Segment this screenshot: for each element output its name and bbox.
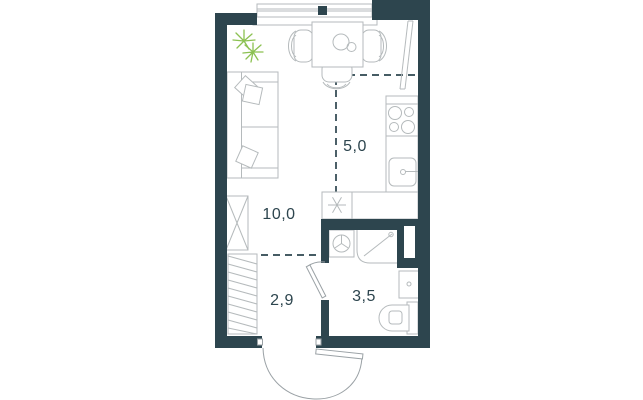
wall-bathroom-left-lower: [321, 300, 329, 336]
entrance-frame-mark: [258, 339, 263, 345]
entrance-door: [263, 348, 363, 399]
wall-left: [215, 13, 227, 348]
toilet: [379, 302, 418, 334]
dining-table: [312, 22, 363, 67]
washing-machine: [329, 230, 354, 257]
window-handle: [318, 6, 327, 15]
wall-top-left: [215, 13, 257, 25]
bathroom-area-label: 3,5: [352, 288, 376, 305]
kitchen-area-label: 5,0: [343, 138, 367, 155]
wall-bottom-right: [316, 336, 430, 348]
sliding-closet: [228, 254, 257, 334]
entrance-door-leaf: [316, 349, 363, 359]
floor-plan: 10,0 5,0 2,9 3,5: [0, 0, 643, 400]
ventilation-shaft: [404, 226, 415, 258]
wall-bottom-left: [215, 336, 262, 348]
tall-cabinet: [400, 21, 413, 89]
chair-right: [362, 30, 387, 62]
wardrobe: [226, 196, 248, 250]
toilet-bowl: [379, 305, 409, 331]
bathroom-door: [306, 262, 325, 298]
floor-plan-page: 10,0 5,0 2,9 3,5: [0, 0, 643, 400]
hallway-area-label: 2,9: [270, 292, 294, 309]
plant: [233, 30, 263, 62]
wall-bathroom-left-upper: [321, 219, 329, 263]
wall-right: [418, 0, 430, 348]
bathroom-door-leaf: [306, 265, 325, 298]
sofa: [227, 72, 278, 178]
living-area-label: 10,0: [262, 206, 295, 223]
chair-left: [289, 30, 314, 62]
sofa-pillow: [242, 84, 262, 104]
shower-cabin: [357, 227, 398, 263]
stove: [386, 104, 418, 136]
entrance-frame-mark: [316, 339, 321, 345]
